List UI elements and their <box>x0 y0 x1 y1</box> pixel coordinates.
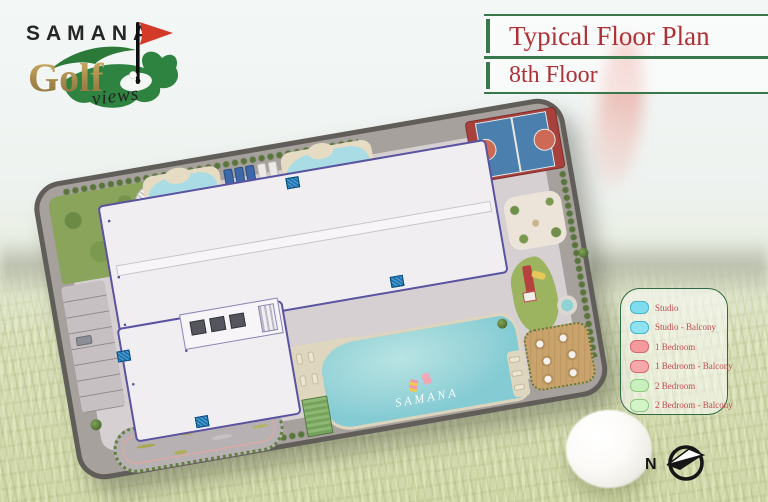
compass-north-label: N <box>645 456 657 474</box>
golf-ball <box>566 410 652 488</box>
compass-icon <box>659 440 711 486</box>
wood-deck <box>522 320 598 392</box>
legend-item: 1 Bedroom <box>630 337 727 357</box>
legend-swatch <box>630 379 649 392</box>
title-accent-bar <box>486 19 490 53</box>
balcony-pool-tile <box>389 274 404 287</box>
tree <box>578 247 590 259</box>
legend-label: Studio <box>655 303 679 313</box>
parked-car <box>75 335 92 347</box>
unit-column-west <box>124 315 189 384</box>
sand-play-area <box>502 189 568 252</box>
unit-cyan <box>124 324 126 326</box>
unit-green <box>108 220 110 222</box>
samana-golf-views-logo: SAMANA Golf views <box>14 8 194 116</box>
stairwell <box>258 303 278 332</box>
unit-type-legend: StudioStudio - Balcony1 Bedroom1 Bedroom… <box>620 288 728 415</box>
legend-label: Studio - Balcony <box>655 322 716 332</box>
legend-item: 1 Bedroom - Balcony <box>630 357 727 377</box>
title-accent-bar <box>486 62 490 89</box>
unit-cyan <box>185 350 187 352</box>
floor-subtitle: 8th Floor <box>509 59 768 92</box>
unit-green <box>132 383 134 385</box>
title-box: Typical Floor Plan <box>484 14 768 58</box>
legend-swatch <box>630 321 649 334</box>
pool-watermark: SAMANA <box>394 385 460 411</box>
legend-label: 2 Bedroom - Balcony <box>655 400 733 410</box>
legend-item: Studio <box>630 298 727 318</box>
pool-float <box>421 372 433 385</box>
unit-green <box>118 276 120 278</box>
page: SAMANA <box>0 0 768 502</box>
legend-item: Studio - Balcony <box>630 318 727 338</box>
legend-label: 2 Bedroom <box>655 381 695 391</box>
legend-swatch <box>630 301 649 314</box>
page-title: Typical Floor Plan <box>509 16 768 56</box>
compass: N <box>645 440 715 486</box>
elevator-shaft <box>229 312 246 328</box>
legend-item: 2 Bedroom <box>630 376 727 396</box>
pool-float <box>409 379 419 392</box>
legend-swatch <box>630 360 649 373</box>
legend-label: 1 Bedroom <box>655 342 695 352</box>
legend-item: 2 Bedroom - Balcony <box>630 396 727 416</box>
legend-swatch <box>630 399 649 412</box>
balcony-pool-tile <box>194 415 209 428</box>
legend-swatch <box>630 340 649 353</box>
legend-label: 1 Bedroom - Balcony <box>655 361 733 371</box>
balcony-pool-tile <box>116 349 131 362</box>
elevator-shaft <box>209 316 226 332</box>
spa-pool <box>556 294 579 317</box>
elevator-shaft <box>189 319 206 335</box>
subtitle-box: 8th Floor <box>484 57 768 94</box>
